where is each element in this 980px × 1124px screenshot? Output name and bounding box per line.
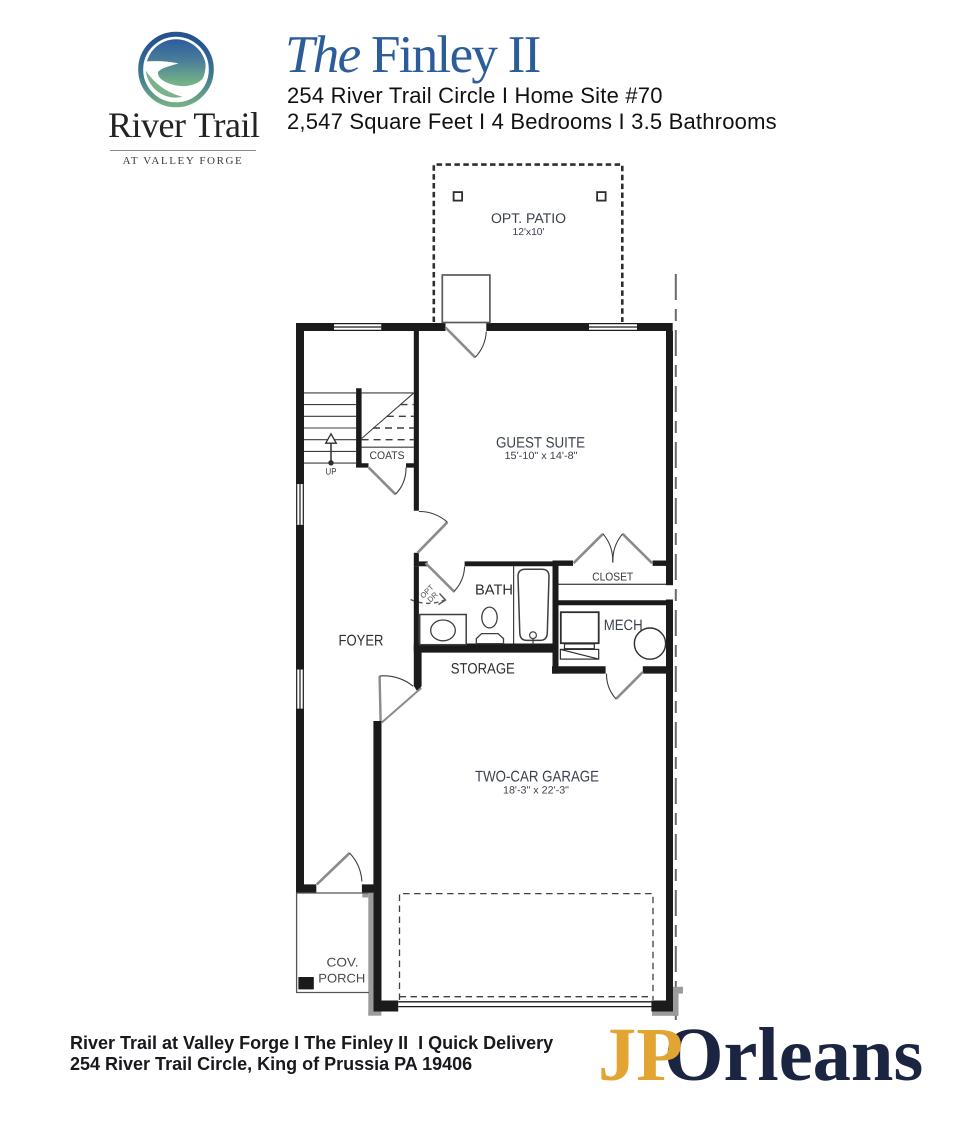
svg-text:PORCH: PORCH — [318, 972, 365, 986]
svg-text:STORAGE: STORAGE — [451, 661, 515, 678]
svg-text:OPT. PATIO: OPT. PATIO — [491, 210, 566, 226]
svg-text:15'-10" x 14'-8": 15'-10" x 14'-8" — [505, 450, 578, 462]
svg-text:TWO-CAR GARAGE: TWO-CAR GARAGE — [475, 769, 599, 786]
svg-text:MECH: MECH — [604, 617, 643, 634]
svg-text:18'-3" x 22'-3": 18'-3" x 22'-3" — [503, 785, 569, 797]
svg-text:COV.: COV. — [327, 956, 359, 970]
svg-text:UP: UP — [326, 467, 337, 477]
svg-text:FOYER: FOYER — [339, 633, 384, 650]
svg-text:BATH: BATH — [475, 583, 513, 599]
svg-text:12'x10': 12'x10' — [513, 227, 545, 238]
svg-text:GUEST SUITE: GUEST SUITE — [496, 435, 585, 452]
svg-text:CLOSET: CLOSET — [592, 572, 633, 584]
svg-text:COATS: COATS — [370, 450, 405, 462]
